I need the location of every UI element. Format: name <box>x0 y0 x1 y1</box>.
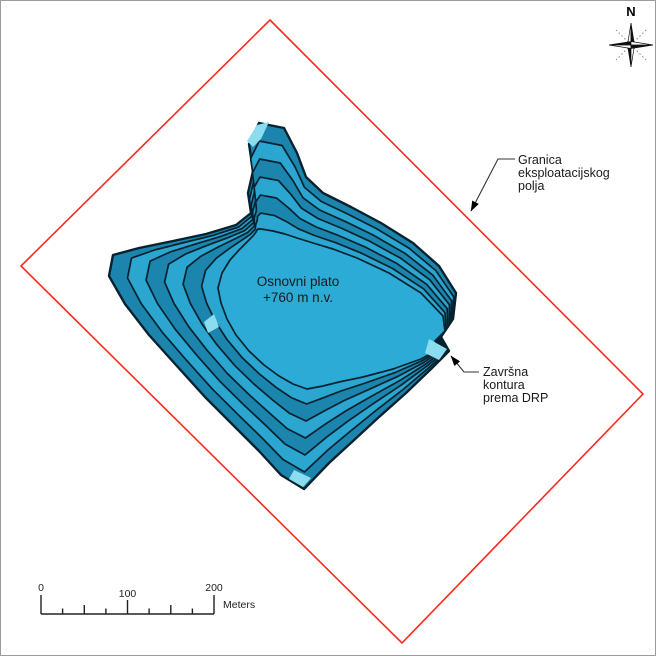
scale-label-200: 200 <box>205 582 223 594</box>
scale-unit-label: Meters <box>223 599 255 611</box>
plateau-label-line1: Osnovni plato <box>257 274 340 289</box>
boundary-label-line3: polja <box>518 179 544 193</box>
compass-star <box>609 23 653 67</box>
final-contour-label-line2: kontura <box>483 378 525 392</box>
final-contour-leader-line <box>451 356 479 372</box>
boundary-annotation: Granica eksploatacijskog polja <box>471 153 610 211</box>
north-label: N <box>626 4 635 19</box>
north-arrow-icon: N <box>609 4 653 67</box>
final-contour-label-line3: prema DRP <box>483 391 548 405</box>
plateau-label: Osnovni plato +760 m n.v. <box>257 274 340 305</box>
map-canvas: Osnovni plato +760 m n.v. Granica eksplo… <box>0 0 656 656</box>
scale-label-0: 0 <box>38 582 44 594</box>
boundary-label-line1: Granica <box>518 153 562 167</box>
boundary-leader-line <box>471 159 515 211</box>
final-contour-annotation: Završna kontura prema DRP <box>451 356 548 405</box>
final-contour-label-line1: Završna <box>483 365 528 379</box>
site-plan-drawing: Osnovni plato +760 m n.v. Granica eksplo… <box>1 1 656 656</box>
scale-bar: 0 100 200 Meters <box>38 582 255 614</box>
open-pit-contours <box>109 123 456 489</box>
boundary-label-line2: eksploatacijskog <box>518 166 610 180</box>
scale-label-100: 100 <box>119 588 137 600</box>
plateau-label-line2: +760 m n.v. <box>263 290 333 305</box>
